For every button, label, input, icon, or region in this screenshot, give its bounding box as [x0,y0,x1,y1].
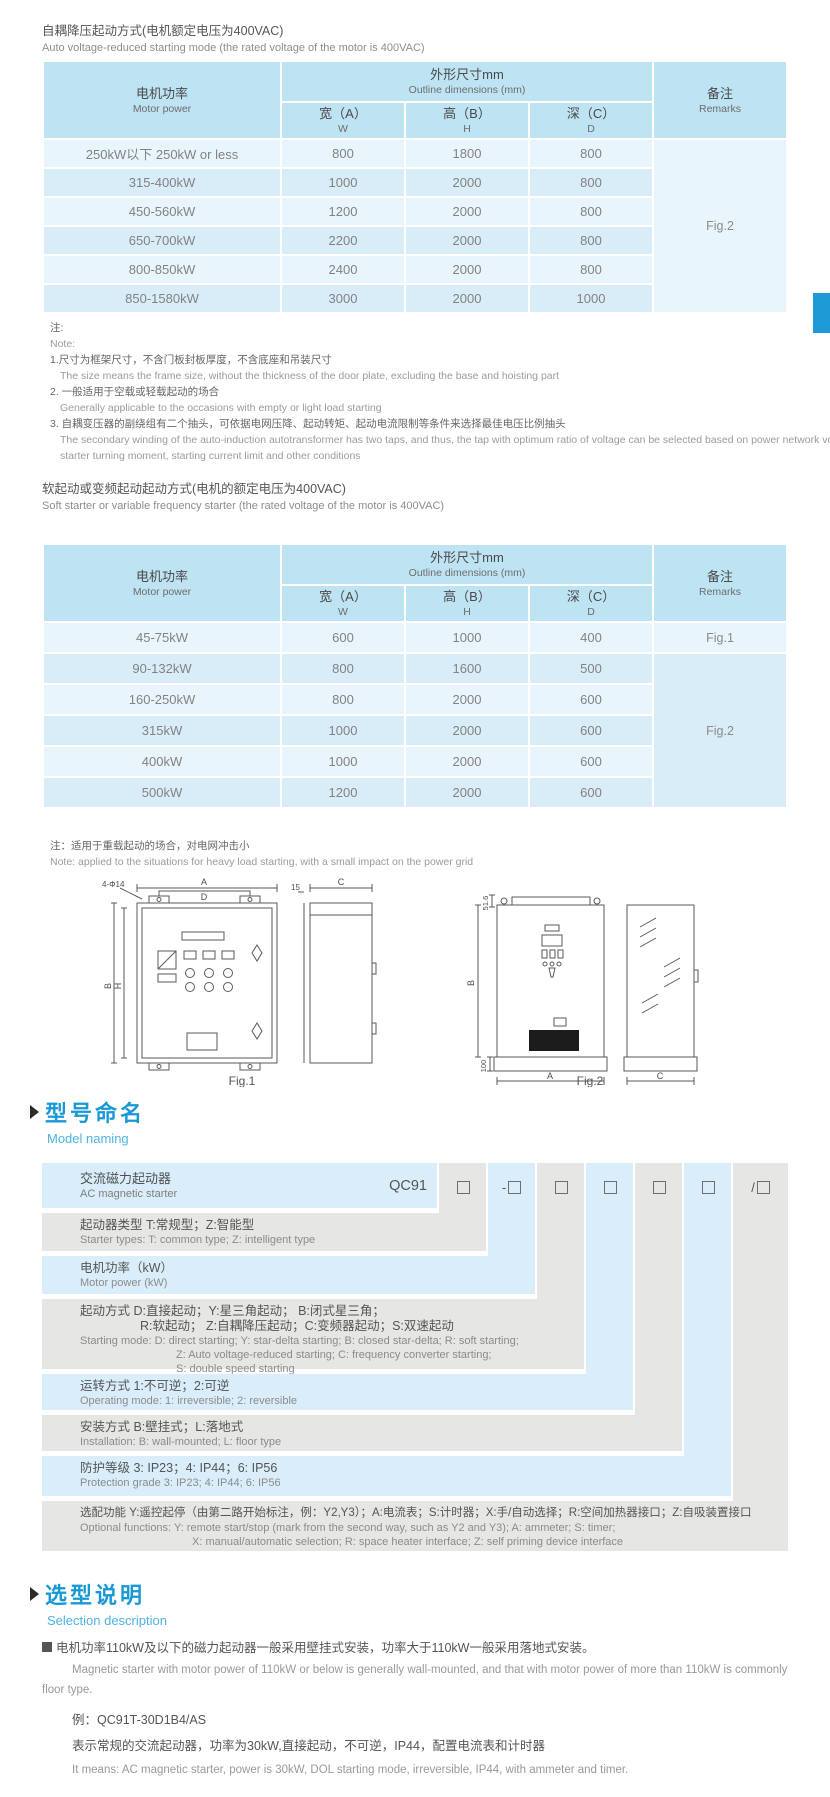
note-label-zh: 注: [50,320,830,336]
catalog-page: 自耦降压起动方式(电机额定电压为400VAC) Auto voltage-red… [0,0,830,1797]
fig1-dim-holes: 4-Φ14 [102,880,125,889]
fig1-dim-b: B [103,983,113,989]
fig2-dim-100: 100 [479,1060,488,1073]
remark-fig2: Fig.2 [654,140,786,312]
model-naming-diagram: 交流磁力起动器 AC magnetic starter QC91 - / [42,1163,788,1555]
selection-heading-en: Selection description [47,1613,167,1628]
soft-mode-dimensions-table: 电机功率 Motor power 外形尺寸mm Outline dimensio… [42,543,788,809]
fig2-dim-a: A [547,1071,553,1081]
header-motor-power: 电机功率 Motor power [44,62,280,138]
model-code: QC91 [389,1178,427,1194]
note-line: 3. 自耦变压器的副绕组有二个抽头，可依据电网压降、起动转矩、起动电流限制等条件… [50,416,830,432]
note-line: The secondary winding of the auto-induct… [50,432,830,448]
fig2-label: Fig.2 [577,1074,604,1087]
model-row-optional-functions: 选配功能 Y:遥控起停（由第二路开始标注，例：Y2,Y3）；A:电流表；S:计时… [42,1501,788,1551]
soft-mode-title-zh: 软起动或变频起动起动方式(电机的额定电压为400VAC) [42,480,444,498]
auto-mode-title-en: Auto voltage-reduced starting mode (the … [42,40,425,56]
fig1-dim-c: C [338,877,345,887]
fig1-dim-d: D [201,892,208,902]
fig2-dim-b: B [466,980,476,986]
header-remarks: 备注 Remarks [654,545,786,621]
fig1-label: Fig.1 [229,1074,256,1087]
header-outline-dimensions: 外形尺寸mm Outline dimensions (mm) [282,545,652,584]
code-box [702,1181,715,1194]
header-height: 高（B）H [406,586,528,621]
selection-example-zh: 表示常规的交流起动器，功率为30kW,直接起动，不可逆，IP44，配置电流表和计… [42,1736,788,1756]
header-height: 高（B）H [406,103,528,138]
fig1-dim-15: 15 [291,883,300,892]
model-row-protection-grade: 防护等级 3: IP23；4: IP44；6: IP56 Protection … [42,1456,731,1496]
code-column-5 [635,1163,682,1451]
table-row: 250kW以下 250kW or less 800 1800 800 Fig.2 [44,140,786,167]
outline-drawings: A D 4-Φ14 B H 15 C 51.6 B 100 A C Fig.1 … [42,875,788,1087]
note-line: The size means the frame size, without t… [50,368,830,384]
code-box [757,1181,770,1194]
code-box [457,1181,470,1194]
header-motor-power: 电机功率 Motor power [44,545,280,621]
fig2-dim-516: 51.6 [481,896,490,911]
header-width: 宽（A）W [282,586,404,621]
code-box [653,1181,666,1194]
selection-body: 电机功率110kW及以下的磁力起动器一般采用壁挂式安装，功率大于110kW一般采… [42,1638,788,1780]
fig1-dim-a: A [201,877,207,887]
model-naming-heading-en: Model naming [47,1131,145,1146]
note-line: 2. 一般适用于空载或轻载起动的场合 [50,384,830,400]
auto-mode-notes: 注: Note: 1.尺寸为框架尺寸，不含门板封板厚度，不含底座和吊装尺寸 Th… [50,320,830,464]
soft-mode-note: 注：适用于重载起动的场合，对电网冲击小 Note: applied to the… [50,838,473,870]
table-row: 90-132kW8001600500 Fig.2 [44,654,786,683]
note-label-en: Note: [50,336,830,352]
remark-fig2: Fig.2 [654,654,786,807]
model-row-installation: 安装方式 B:壁挂式；L:落地式 Installation: B: wall-m… [42,1415,682,1451]
header-depth: 深（C）D [530,586,652,621]
code-column-4 [586,1163,633,1410]
model-row-starting-mode: 起动方式 D:直接起动；Y:星三角起动； B:闭式星三角； R:软起动； Z:自… [42,1299,584,1369]
remark-fig1: Fig.1 [654,623,786,652]
model-row-operating-mode: 运转方式 1:不可逆；2:可逆 Operating mode: 1: irrev… [42,1374,633,1410]
header-width: 宽（A）W [282,103,404,138]
soft-mode-title-en: Soft starter or variable frequency start… [42,498,444,514]
header-depth: 深（C）D [530,103,652,138]
code-box [604,1181,617,1194]
code-column-7: / [733,1163,788,1551]
code-box [508,1181,521,1194]
auto-mode-dimensions-table: 电机功率 Motor power 外形尺寸mm Outline dimensio… [42,60,788,314]
section-arrow-icon [30,1105,39,1119]
model-row-starter-type: 起动器类型 T:常规型；Z:智能型 Starter types: T: comm… [42,1213,486,1251]
fig2-dim-c: C [657,1071,664,1081]
selection-body-en: Magnetic starter with motor power of 110… [42,1660,788,1700]
code-column-6 [684,1163,731,1496]
note-line: 1.尺寸为框架尺寸，不含门板封板厚度，不含底座和吊装尺寸 [50,352,830,368]
auto-mode-title-zh: 自耦降压起动方式(电机额定电压为400VAC) [42,22,425,40]
note-line: Generally applicable to the occasions wi… [50,400,830,416]
selection-example-en: It means: AC magnetic starter, power is … [42,1760,788,1780]
note-line: starter turning moment, starting current… [50,448,830,464]
selection-bullet-line: 电机功率110kW及以下的磁力起动器一般采用壁挂式安装，功率大于110kW一般采… [42,1638,788,1658]
square-bullet-icon [42,1642,52,1652]
selection-heading-zh: 选型说明 [45,1578,145,1610]
header-outline-dimensions: 外形尺寸mm Outline dimensions (mm) [282,62,652,101]
model-base-label: 交流磁力起动器 AC magnetic starter QC91 [42,1163,437,1208]
section-arrow-icon [30,1587,39,1601]
fig1-dim-h: H [113,983,123,990]
code-box [555,1181,568,1194]
table-row: 45-75kW6001000400 Fig.1 [44,623,786,652]
header-remarks: 备注 Remarks [654,62,786,138]
selection-example-code: 例：QC91T-30D1B4/AS [42,1710,788,1730]
model-row-motor-power: 电机功率（kW） Motor power (kW) [42,1256,535,1294]
model-naming-heading-zh: 型号命名 [45,1096,145,1128]
